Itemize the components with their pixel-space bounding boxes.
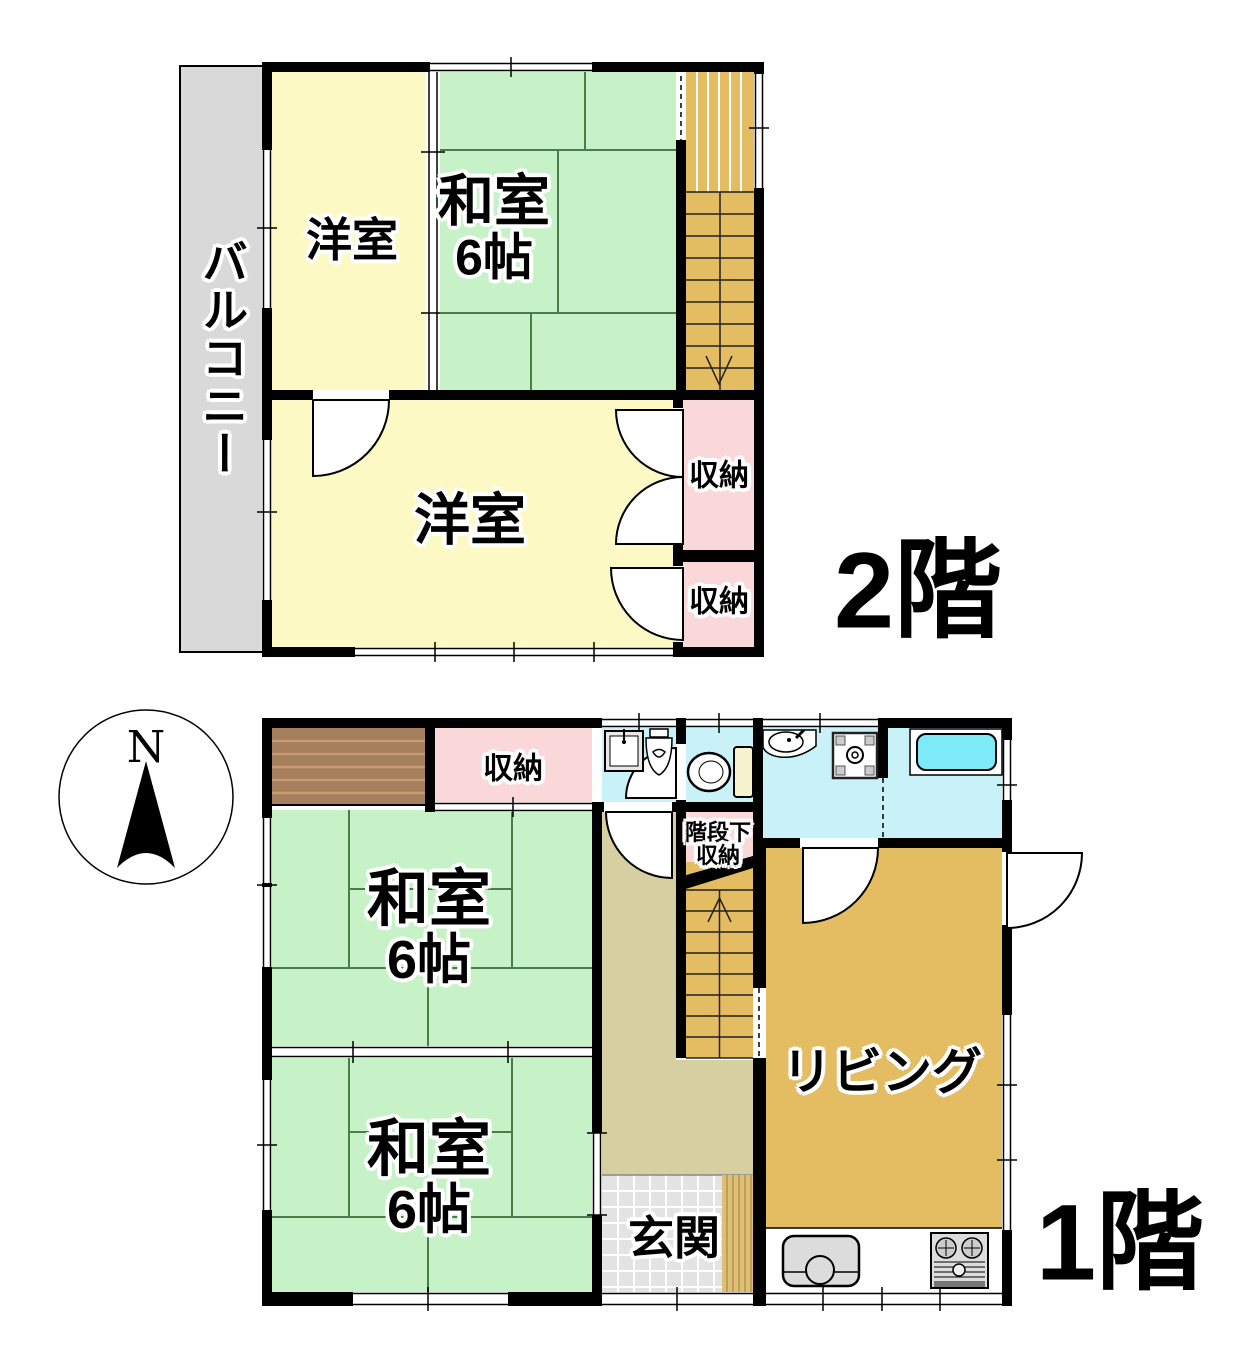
compass-north-label: N [127,725,166,771]
door-swing-exterior [1007,853,1082,928]
entrance-label: 玄関 [628,1214,720,1262]
wall [753,1058,766,1306]
japanese-room-1f-bottom-label-line1: 和室 [367,1117,491,1182]
western-room-bottom-label: 洋室 [414,492,526,551]
entrance-step [722,1175,753,1292]
floor2-title: 2階 [834,533,1002,646]
closet-1f-label: 収納 [483,753,543,785]
japanese-room-2f-label: 和室 6帖 [438,172,550,283]
japanese-room-1f-top-label-line1: 和室 [367,867,491,932]
door-opening [313,390,389,400]
wall [592,812,602,1292]
hand-sink-icon [605,729,643,771]
door-opening [676,744,686,800]
wall [676,892,686,1058]
japanese-room-2f-label-line2: 6帖 [438,231,550,284]
balcony-label: バルコニー [198,238,246,478]
living-room-label: リビング [782,1046,982,1099]
closet-lower-2f-label: 収納 [689,586,749,618]
floor-plan-drawing [0,0,1250,1368]
floor-plan-canvas: バルコニー 洋室 和室 6帖 洋室 収納 収納 2階 N 収納 和室 6帖 和室… [0,0,1250,1368]
stove-icon [931,1233,988,1288]
under-stairs-storage-label-line1: 階段下 [685,821,751,844]
floor1-title: 1階 [1036,1185,1204,1298]
closet-upper-2f-label: 収納 [689,460,749,492]
wall [425,728,435,812]
hallway [602,1060,753,1175]
kitchen-sink-icon [783,1236,859,1286]
western-room-top-label: 洋室 [306,216,398,264]
japanese-room-2f-label-line1: 和室 [438,172,550,231]
under-stairs-storage-label-line2: 収納 [685,844,751,867]
japanese-room-1f-top-label-line2: 6帖 [367,932,491,989]
wall [676,140,686,390]
wall [753,718,763,838]
under-stairs-storage-label: 階段下 収納 [685,821,751,867]
japanese-room-1f-bottom-label-line2: 6帖 [367,1182,491,1239]
wall [262,718,272,1306]
wall [753,838,1012,848]
japanese-room-1f-top-label: 和室 6帖 [367,867,491,989]
wood-closet-1f [272,728,425,806]
floor2-plan [180,57,769,662]
japanese-room-1f-bottom-label: 和室 6帖 [367,1117,491,1239]
bathtub-icon [910,729,1002,775]
washing-machine-icon [833,733,877,778]
door-opening [604,802,672,812]
wall [753,848,766,988]
wall [878,728,888,778]
door-opening [800,838,878,848]
wall [683,550,754,562]
